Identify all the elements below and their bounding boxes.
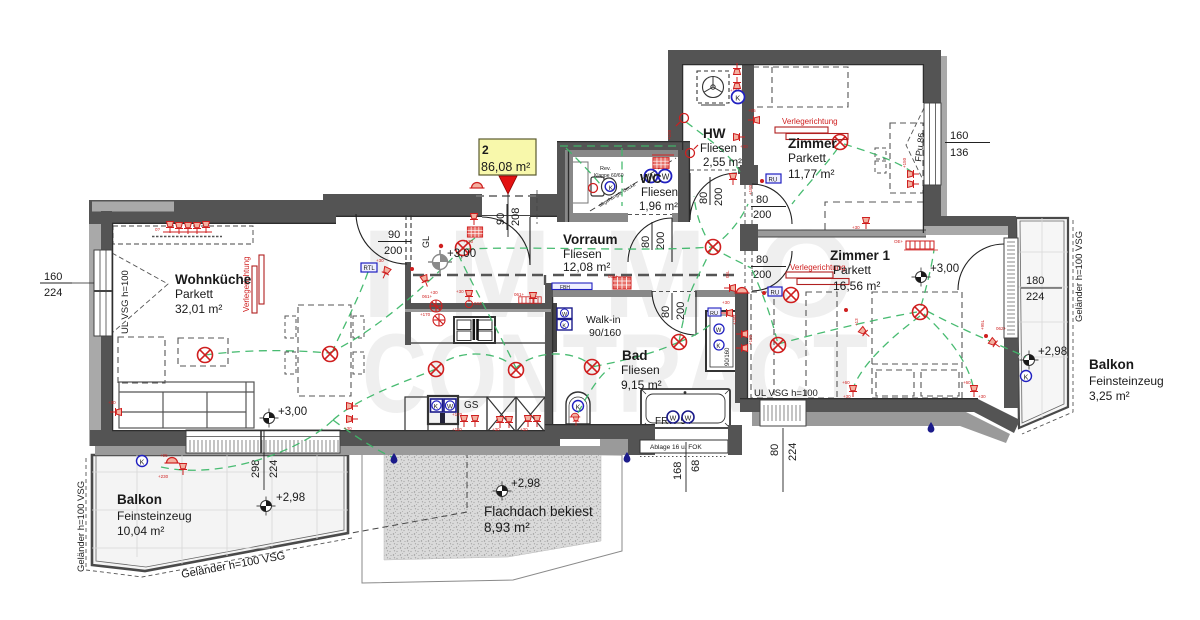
svg-text:RU: RU: [769, 177, 778, 183]
svg-text:+30: +30: [492, 427, 500, 432]
svg-text:+30: +30: [344, 426, 352, 431]
svg-text:+30: +30: [108, 400, 116, 405]
svg-text:K: K: [140, 459, 145, 466]
svg-text:2: 2: [482, 143, 489, 157]
svg-text:Balkon: Balkon: [1089, 357, 1134, 372]
svg-text:+3,00: +3,00: [930, 263, 959, 275]
svg-text:RU: RU: [710, 311, 718, 317]
svg-text:Ablage 16 u. FOK: Ablage 16 u. FOK: [650, 444, 702, 451]
svg-text:+30: +30: [978, 394, 986, 399]
svg-text:K: K: [716, 344, 720, 350]
svg-text:Fliesen: Fliesen: [700, 143, 737, 155]
svg-text:+150: +150: [667, 129, 672, 140]
svg-text:+180: +180: [748, 184, 753, 195]
svg-text:+30: +30: [740, 144, 748, 149]
svg-text:W: W: [662, 173, 670, 182]
svg-text:224: 224: [44, 287, 62, 299]
svg-text:9,15 m²: 9,15 m²: [621, 378, 662, 392]
svg-text:200: 200: [753, 209, 771, 221]
svg-text:298: 298: [250, 460, 262, 478]
svg-text:+30: +30: [376, 258, 384, 263]
svg-text:90/160: 90/160: [725, 347, 731, 366]
svg-text:224: 224: [1026, 291, 1044, 303]
svg-text:K: K: [434, 404, 439, 411]
svg-text:168: 168: [672, 462, 684, 480]
svg-text:+230: +230: [158, 474, 169, 479]
svg-text:200: 200: [384, 245, 402, 257]
svg-text:Fliesen: Fliesen: [641, 187, 678, 199]
svg-text:2,55 m²: 2,55 m²: [703, 157, 742, 169]
svg-text:W: W: [447, 404, 454, 411]
svg-text:K: K: [735, 94, 740, 103]
svg-text:Balkon: Balkon: [117, 492, 162, 507]
svg-text:W: W: [716, 328, 722, 334]
svg-text:+150: +150: [902, 157, 907, 168]
svg-text:68: 68: [690, 460, 702, 472]
svg-text:Wohnküche: Wohnküche: [175, 272, 252, 287]
svg-text:FBH: FBH: [560, 285, 570, 291]
svg-text:+180: +180: [748, 334, 753, 345]
svg-text:+180: +180: [732, 314, 737, 325]
svg-text:+170: +170: [452, 412, 463, 417]
svg-text:136: 136: [950, 147, 968, 159]
svg-text:RU: RU: [771, 290, 780, 296]
svg-text:+170: +170: [420, 312, 431, 317]
svg-text:80: 80: [698, 192, 710, 204]
svg-text:8,93 m²: 8,93 m²: [484, 520, 530, 535]
svg-text:Parkett: Parkett: [175, 287, 214, 301]
svg-text:Rev.: Rev.: [600, 166, 611, 172]
svg-text:+05: +05: [748, 108, 756, 113]
svg-text:224: 224: [268, 460, 280, 478]
svg-text:HW: HW: [703, 126, 726, 141]
svg-text:+30: +30: [520, 427, 528, 432]
svg-text:Fliesen: Fliesen: [621, 363, 660, 377]
svg-text:Geländer h=100 VSG: Geländer h=100 VSG: [76, 481, 87, 572]
svg-text:062+: 062+: [996, 326, 1007, 331]
svg-text:200: 200: [713, 188, 725, 206]
svg-text:GS: GS: [464, 400, 479, 411]
svg-text:UL VSG h=100: UL VSG h=100: [120, 270, 131, 334]
svg-text:+2,98: +2,98: [511, 478, 540, 490]
svg-text:80: 80: [756, 194, 768, 206]
svg-text:224: 224: [787, 443, 799, 461]
svg-text:+2,98: +2,98: [276, 492, 305, 504]
svg-text:80: 80: [640, 236, 652, 248]
svg-text:05L+: 05L+: [608, 274, 619, 279]
svg-text:+3,00: +3,00: [278, 406, 307, 418]
svg-text:0?: 0?: [155, 227, 161, 232]
svg-text:+60: +60: [842, 380, 850, 385]
svg-text:Zimmer 1: Zimmer 1: [830, 248, 891, 263]
svg-text:10,04 m²: 10,04 m²: [117, 524, 164, 538]
svg-text:W: W: [685, 415, 692, 422]
svg-text:200: 200: [753, 269, 771, 281]
svg-text:+30: +30: [456, 289, 464, 294]
svg-text:Feinsteinzeug: Feinsteinzeug: [1089, 374, 1164, 388]
svg-text:3,25 m²: 3,25 m²: [1089, 389, 1130, 403]
svg-text:K: K: [609, 185, 614, 192]
svg-text:200: 200: [655, 232, 667, 250]
svg-text:11,77 m²: 11,77 m²: [788, 167, 834, 181]
svg-text:061+: 061+: [514, 292, 525, 297]
svg-text:1,96 m²: 1,96 m²: [639, 201, 678, 213]
svg-text:+30: +30: [843, 394, 851, 399]
svg-text:W: W: [670, 415, 677, 422]
svg-text:+130: +130: [463, 239, 474, 244]
svg-text:90/160: 90/160: [589, 327, 621, 339]
svg-text:Feinsteinzeug: Feinsteinzeug: [117, 509, 192, 523]
svg-text:208: 208: [510, 208, 522, 226]
svg-text:+60: +60: [963, 380, 971, 385]
svg-text:Verlegerichtung: Verlegerichtung: [782, 117, 838, 126]
svg-text:Walk-in: Walk-in: [586, 314, 621, 326]
svg-text:16,56 m²: 16,56 m²: [833, 279, 880, 293]
svg-text:+110: +110: [452, 427, 462, 432]
svg-text:80: 80: [756, 254, 768, 266]
svg-text:+95L: +95L: [980, 319, 985, 330]
svg-text:K: K: [562, 324, 566, 330]
svg-text:90: 90: [495, 213, 507, 225]
svg-text:+30: +30: [852, 225, 860, 230]
svg-text:+95: +95: [160, 453, 168, 458]
svg-text:Klappe 60/60: Klappe 60/60: [594, 173, 624, 179]
svg-text:02Z: 02Z: [474, 301, 482, 306]
svg-text:061+: 061+: [422, 294, 433, 299]
svg-text:80: 80: [769, 444, 781, 456]
svg-text:Parkett: Parkett: [788, 151, 827, 165]
svg-text:GL: GL: [421, 236, 431, 248]
svg-text:Flachdach bekiest: Flachdach bekiest: [484, 504, 593, 519]
svg-text:80: 80: [660, 306, 672, 318]
svg-text:Geländer h=100 VSG: Geländer h=100 VSG: [1074, 231, 1085, 322]
svg-text:Zimmer: Zimmer: [788, 136, 838, 151]
svg-text:K: K: [1024, 374, 1029, 381]
svg-text:160: 160: [44, 271, 62, 283]
svg-text:05L: 05L: [725, 270, 730, 278]
svg-text:90: 90: [388, 229, 400, 241]
svg-text:12,08 m²: 12,08 m²: [563, 260, 610, 274]
svg-text:86,08 m²: 86,08 m²: [481, 160, 530, 174]
svg-text:W: W: [562, 312, 568, 318]
svg-text:32,01 m²: 32,01 m²: [175, 302, 222, 316]
svg-text:+13: +13: [854, 318, 859, 326]
svg-text:+30: +30: [722, 300, 730, 305]
svg-text:OE+: OE+: [894, 239, 904, 244]
svg-text:160: 160: [950, 130, 968, 142]
svg-text:Parkett: Parkett: [833, 263, 872, 277]
svg-text:+3,00: +3,00: [447, 248, 476, 260]
svg-text:+2,98: +2,98: [1038, 346, 1067, 358]
svg-text:Bad: Bad: [622, 348, 648, 363]
svg-text:RTL: RTL: [364, 266, 376, 272]
svg-text:180: 180: [1026, 275, 1044, 287]
svg-text:Fliesen: Fliesen: [563, 247, 602, 261]
svg-text:WC: WC: [640, 171, 662, 186]
svg-text:Vorraum: Vorraum: [563, 232, 618, 247]
svg-text:UL VSG h=100: UL VSG h=100: [754, 388, 818, 399]
